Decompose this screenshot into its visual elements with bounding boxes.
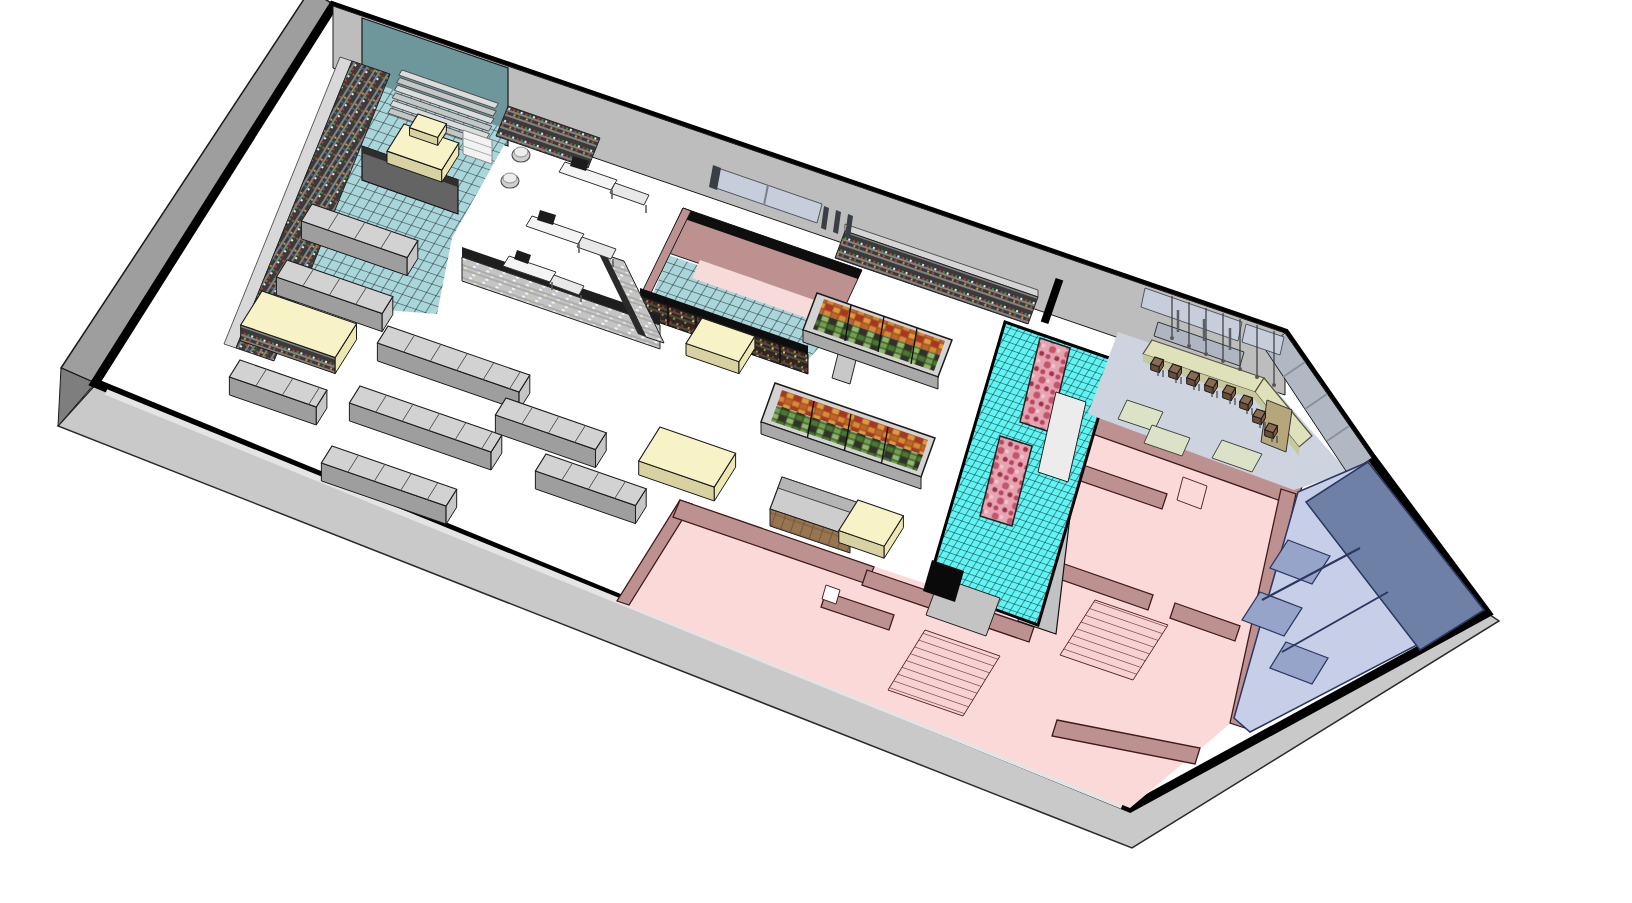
- floorplan-canvas: [0, 0, 1632, 903]
- floorplan-svg: [0, 0, 1632, 903]
